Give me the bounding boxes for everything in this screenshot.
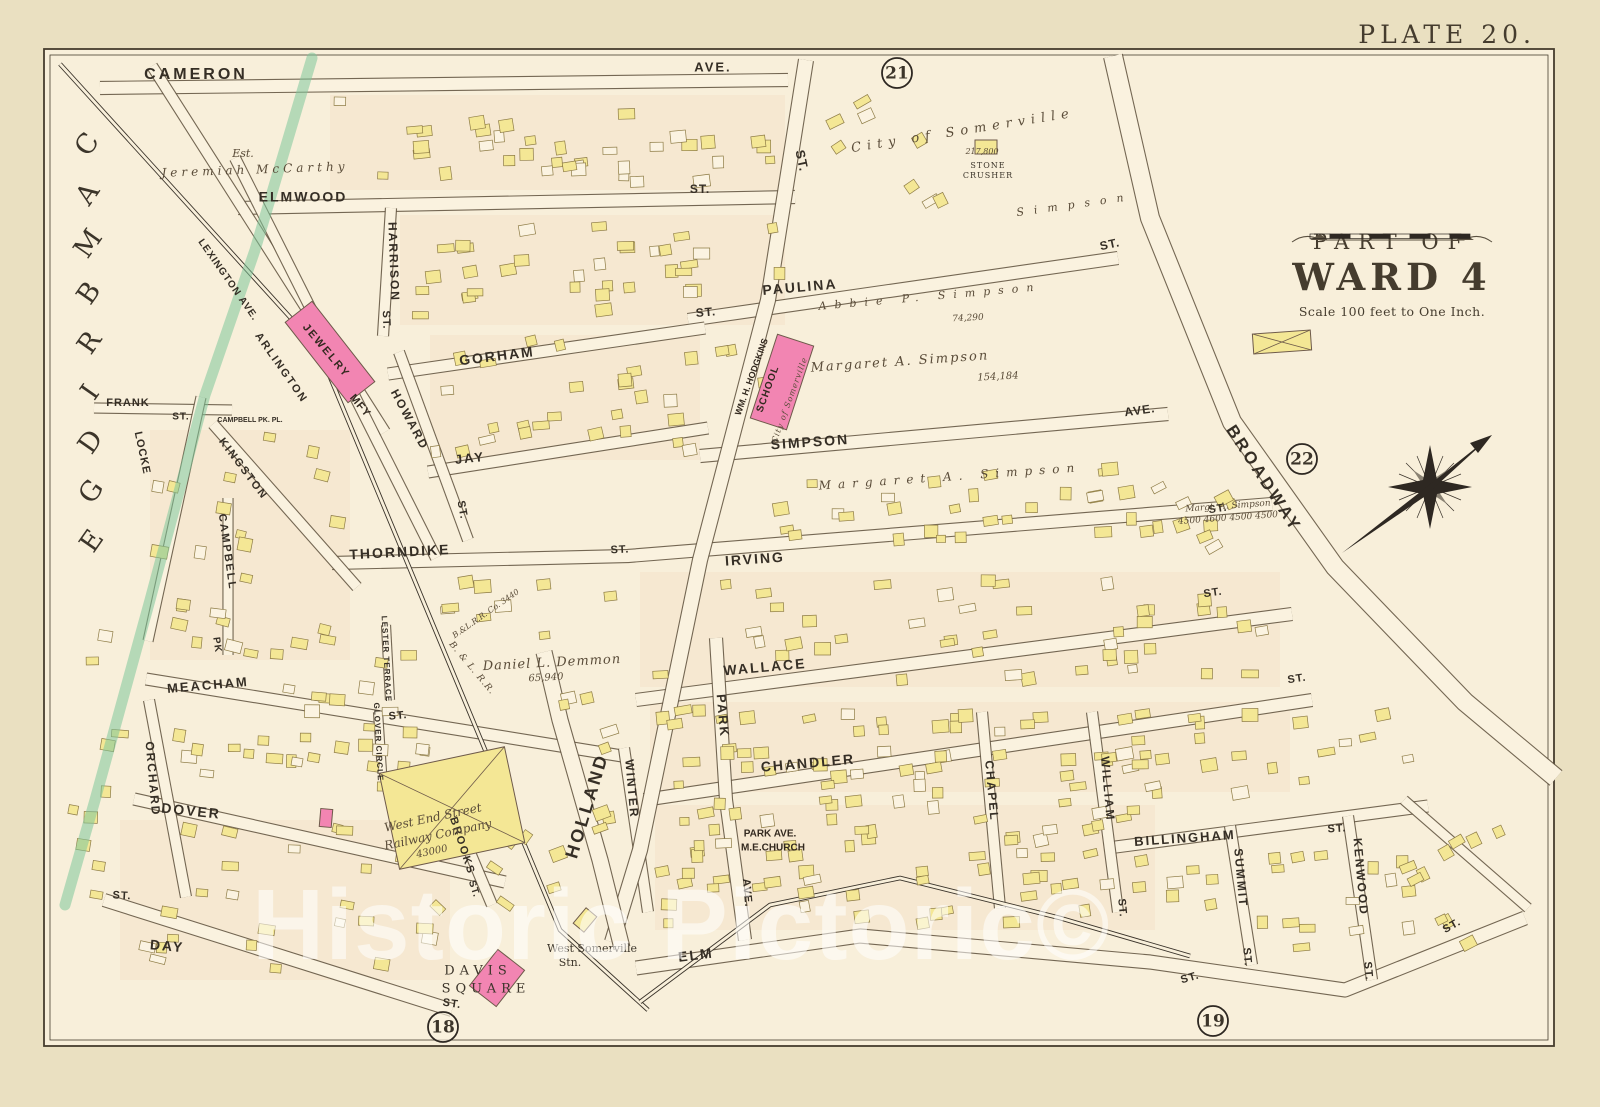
scale-bar-segment <box>1310 234 1330 239</box>
scale-bar <box>1282 230 1502 244</box>
map-canvas: CAMERONAVE.ELMWOODST.HARRISONST.PAULINAS… <box>0 0 1600 1107</box>
house-footprint <box>200 769 214 778</box>
house-footprint <box>228 744 240 752</box>
house-footprint <box>1206 874 1218 884</box>
house-footprint <box>881 493 894 502</box>
house-footprint <box>569 381 583 392</box>
house-footprint <box>1003 916 1020 928</box>
house-footprint <box>334 918 345 928</box>
house-footprint <box>479 140 493 151</box>
house-footprint <box>853 726 864 737</box>
house-footprint <box>416 286 429 294</box>
house-footprint <box>1242 708 1258 721</box>
house-footprint <box>1101 577 1114 591</box>
house-footprint <box>1021 720 1035 729</box>
house-footprint <box>283 684 295 694</box>
house-footprint <box>611 409 623 420</box>
house-footprint <box>401 650 417 660</box>
house-footprint <box>770 603 783 612</box>
house-footprint <box>682 443 697 456</box>
house-footprint <box>1299 924 1315 932</box>
house-footprint <box>1103 649 1117 660</box>
house-footprint <box>1115 747 1133 761</box>
house-footprint <box>680 817 689 825</box>
house-footprint <box>1402 921 1415 935</box>
house-footprint <box>551 157 562 167</box>
house-footprint <box>623 282 635 293</box>
house-footprint <box>709 824 720 835</box>
house-footprint <box>1070 782 1087 791</box>
scale-bar-segment <box>1350 234 1370 239</box>
house-footprint <box>191 743 203 756</box>
house-footprint <box>1293 716 1309 729</box>
house-footprint <box>305 705 320 718</box>
house-footprint <box>559 699 570 710</box>
street-label-harrison: HARRISON <box>385 222 402 302</box>
house-footprint <box>1113 627 1123 637</box>
house-footprint <box>196 889 208 897</box>
place-label-65-940: 65,940 <box>528 672 564 685</box>
house-footprint <box>266 753 283 764</box>
house-footprint <box>439 166 452 180</box>
house-footprint <box>604 591 617 602</box>
plate-number: PLATE 20. <box>1340 20 1536 49</box>
house-footprint <box>972 647 984 658</box>
title-scale-note: Scale 100 feet to One Inch. <box>1282 304 1502 319</box>
house-footprint <box>592 222 607 232</box>
house-footprint <box>1021 672 1037 687</box>
house-footprint <box>618 161 630 174</box>
house-footprint <box>937 587 954 601</box>
house-footprint <box>932 787 943 798</box>
house-footprint <box>887 502 902 516</box>
house-footprint <box>879 725 889 735</box>
house-footprint <box>765 156 775 164</box>
house-footprint <box>358 916 374 926</box>
house-footprint <box>1140 525 1154 537</box>
house-footprint <box>802 615 816 627</box>
house-footprint <box>650 246 660 257</box>
svg-text:22: 22 <box>1290 450 1314 470</box>
house-footprint <box>701 135 716 149</box>
house-footprint <box>520 148 534 160</box>
house-footprint <box>655 866 670 878</box>
house-footprint <box>1095 526 1112 537</box>
house-footprint <box>839 512 854 522</box>
house-footprint <box>595 289 609 301</box>
house-footprint <box>86 657 98 665</box>
house-footprint <box>1272 865 1285 873</box>
house-footprint <box>674 231 690 241</box>
house-footprint <box>474 580 492 594</box>
house-footprint <box>412 312 428 319</box>
house-footprint <box>258 736 269 746</box>
street-label-cameron: CAMERON <box>144 66 248 83</box>
house-footprint <box>693 248 709 259</box>
house-footprint <box>359 739 373 751</box>
house-footprint <box>1314 851 1328 861</box>
place-label-est: Est. <box>231 147 254 160</box>
house-footprint <box>617 241 634 250</box>
house-footprint <box>1124 650 1138 663</box>
place-label-square: SQUARE <box>442 982 531 997</box>
house-footprint <box>1004 835 1018 845</box>
house-footprint <box>1137 605 1150 617</box>
house-footprint <box>503 155 514 165</box>
place-label-stone: STONE <box>970 161 1005 170</box>
house-footprint <box>307 445 320 458</box>
house-footprint <box>713 156 724 168</box>
house-footprint <box>246 940 257 951</box>
house-footprint <box>932 720 949 734</box>
house-footprint <box>1033 712 1048 723</box>
house-footprint <box>969 852 986 861</box>
house-footprint <box>488 422 499 433</box>
atlas-plate-page: CAMERONAVE.ELMWOODST.HARRISONST.PAULINAS… <box>0 0 1600 1107</box>
house-footprint <box>547 412 561 421</box>
house-footprint <box>799 900 810 912</box>
house-footprint <box>562 161 577 172</box>
house-footprint <box>373 957 390 971</box>
house-footprint <box>570 282 580 292</box>
house-footprint <box>673 437 684 447</box>
house-footprint <box>893 533 904 546</box>
house-footprint <box>683 286 697 297</box>
house-footprint <box>1257 916 1268 929</box>
house-footprint <box>1079 904 1091 917</box>
junction-circle-22: 22 <box>1287 444 1317 474</box>
house-footprint <box>270 964 282 974</box>
house-footprint <box>955 532 966 543</box>
house-footprint <box>1062 878 1079 890</box>
street-label-campbell-pk-pl: CAMPBELL PK. PL. <box>217 417 282 424</box>
svg-text:18: 18 <box>431 1018 455 1038</box>
house-footprint <box>1100 879 1115 890</box>
street-label-st: ST. <box>1361 961 1375 981</box>
house-footprint <box>692 849 703 862</box>
house-footprint <box>430 445 440 457</box>
house-footprint <box>707 884 719 893</box>
house-footprint <box>1132 760 1148 769</box>
house-footprint <box>1127 806 1140 815</box>
house-footprint <box>416 923 433 934</box>
house-footprint <box>194 545 206 559</box>
house-footprint <box>821 780 835 789</box>
house-footprint <box>1293 943 1310 952</box>
house-footprint <box>1167 876 1184 889</box>
house-footprint <box>244 749 255 759</box>
house-footprint <box>580 692 594 705</box>
street-label-st: ST. <box>690 182 710 196</box>
street-label-ave: AVE. <box>694 59 731 74</box>
house-footprint <box>554 339 565 351</box>
house-footprint <box>1402 754 1414 763</box>
place-label-west-somerville: West Somerville <box>547 942 637 955</box>
house-footprint <box>1402 885 1416 897</box>
street-label-ave: AVE. <box>740 878 754 908</box>
place-label-davis: DAVIS <box>444 964 512 979</box>
house-footprint <box>152 480 164 493</box>
house-footprint <box>630 176 644 187</box>
house-footprint <box>437 244 454 253</box>
house-footprint <box>555 141 567 155</box>
house-footprint <box>720 579 731 589</box>
house-footprint <box>751 135 766 148</box>
house-footprint <box>659 244 672 256</box>
house-footprint <box>1060 770 1074 781</box>
house-footprint <box>1137 616 1152 627</box>
house-footprint <box>1375 708 1391 722</box>
house-footprint <box>670 130 687 143</box>
house-footprint <box>270 649 283 660</box>
house-footprint <box>1140 750 1152 759</box>
house-footprint <box>334 97 346 106</box>
house-footprint <box>237 537 253 552</box>
house-footprint <box>674 781 684 789</box>
house-footprint <box>893 795 905 809</box>
house-footprint <box>739 711 755 725</box>
house-footprint <box>1118 485 1135 500</box>
house-footprint <box>573 270 584 282</box>
house-footprint <box>854 910 870 924</box>
house-footprint <box>1134 855 1148 868</box>
place-label-217-800: 217,800 <box>964 147 998 156</box>
scale-bar-segment <box>1390 234 1410 239</box>
house-footprint <box>819 796 832 805</box>
house-footprint <box>756 588 772 598</box>
house-footprint <box>358 681 374 695</box>
house-footprint <box>594 258 606 271</box>
scale-bar-segment <box>1330 234 1350 239</box>
house-footprint <box>1194 733 1204 744</box>
house-footprint <box>896 674 908 686</box>
house-footprint <box>1042 824 1057 835</box>
house-footprint <box>1237 620 1252 633</box>
house-footprint <box>1291 851 1305 863</box>
house-footprint <box>772 501 789 516</box>
house-footprint <box>618 373 632 387</box>
street-label-st: ST. <box>1115 898 1129 918</box>
house-footprint <box>403 727 417 738</box>
house-footprint <box>935 751 947 762</box>
house-footprint <box>210 608 226 619</box>
house-footprint <box>1232 751 1247 761</box>
house-footprint <box>176 599 190 611</box>
house-footprint <box>336 826 353 835</box>
house-footprint <box>958 709 973 723</box>
place-label-154-184: 154,184 <box>977 370 1019 383</box>
simpson-estate-building <box>1252 330 1311 354</box>
house-footprint <box>1242 670 1259 678</box>
house-footprint <box>1051 883 1062 894</box>
house-footprint <box>1026 503 1038 513</box>
house-footprint <box>855 826 869 834</box>
house-footprint <box>1201 668 1212 678</box>
house-footprint <box>1217 607 1227 618</box>
house-footprint <box>815 643 831 655</box>
junction-circle-21: 21 <box>882 58 912 88</box>
street-label-frank: FRANK <box>106 397 150 409</box>
house-footprint <box>682 868 694 878</box>
house-footprint <box>899 764 914 777</box>
house-footprint <box>595 303 613 317</box>
house-footprint <box>1188 713 1201 722</box>
building-label-m-e-church: M.E.CHURCH <box>741 843 805 854</box>
house-footprint <box>798 886 815 899</box>
house-footprint <box>533 421 550 430</box>
house-footprint <box>469 115 486 130</box>
svg-text:21: 21 <box>885 64 909 84</box>
house-footprint <box>263 432 276 442</box>
house-footprint <box>767 223 778 234</box>
house-footprint <box>1255 625 1269 636</box>
house-footprint <box>927 801 939 815</box>
house-footprint <box>694 840 704 850</box>
house-footprint <box>498 118 514 132</box>
house-footprint <box>361 864 371 874</box>
street-label-st: ST. <box>1240 947 1254 967</box>
house-footprint <box>1104 638 1118 651</box>
house-footprint <box>620 426 631 438</box>
house-footprint <box>407 126 423 135</box>
house-footprint <box>1101 462 1118 476</box>
house-footprint <box>456 240 471 251</box>
street-label-st: ST. <box>695 304 716 320</box>
street-label-pk: PK <box>210 636 223 653</box>
house-footprint <box>653 670 669 678</box>
house-footprint <box>311 692 326 701</box>
house-footprint <box>684 351 698 365</box>
house-footprint <box>841 709 854 720</box>
street-label-jay: JAY <box>454 449 486 467</box>
house-footprint <box>518 223 535 236</box>
house-footprint <box>827 814 837 825</box>
house-footprint <box>1117 713 1132 725</box>
house-footprint <box>675 268 691 276</box>
house-footprint <box>635 390 649 404</box>
house-footprint <box>1041 853 1055 862</box>
house-footprint <box>1153 520 1164 533</box>
house-footprint <box>1132 736 1145 745</box>
house-footprint <box>850 769 863 779</box>
house-footprint <box>721 746 734 759</box>
house-footprint <box>222 861 239 870</box>
house-footprint <box>874 580 892 590</box>
house-footprint <box>664 919 673 928</box>
house-footprint <box>329 515 345 529</box>
house-footprint <box>500 263 517 277</box>
house-footprint <box>1060 487 1071 500</box>
house-footprint <box>930 908 943 921</box>
place-label-stn: Stn. <box>559 956 582 969</box>
scale-bar-segment <box>1430 234 1450 239</box>
house-footprint <box>416 743 430 755</box>
house-footprint <box>845 795 862 808</box>
house-footprint <box>936 535 945 542</box>
house-footprint <box>224 472 237 483</box>
house-footprint <box>774 267 785 279</box>
house-footprint <box>1231 786 1249 801</box>
house-footprint <box>1059 798 1072 807</box>
house-footprint <box>914 779 926 792</box>
house-footprint <box>807 480 817 488</box>
house-footprint <box>664 394 678 407</box>
house-footprint <box>995 727 1005 736</box>
house-footprint <box>846 890 860 902</box>
scale-bar-segment <box>1370 234 1390 239</box>
house-footprint <box>1268 852 1281 864</box>
house-footprint <box>693 705 706 716</box>
house-footprint <box>1299 776 1310 784</box>
house-footprint <box>467 289 483 296</box>
street-label-st: ST. <box>112 889 132 902</box>
house-footprint <box>1339 739 1352 747</box>
street-label-elmwood: ELMWOOD <box>259 189 348 205</box>
house-footprint <box>1349 925 1364 935</box>
junction-circle-18: 18 <box>428 1012 458 1042</box>
house-footprint <box>441 385 454 395</box>
house-footprint <box>714 798 725 810</box>
street-label-st: ST. <box>172 412 189 423</box>
house-footprint <box>715 838 731 848</box>
house-footprint <box>288 845 300 853</box>
house-footprint <box>1020 891 1037 902</box>
house-footprint <box>764 876 781 888</box>
house-footprint <box>514 254 529 266</box>
scale-bar-segment <box>1450 234 1470 239</box>
house-footprint <box>667 718 683 730</box>
house-footprint <box>1005 669 1022 680</box>
house-footprint <box>754 636 765 649</box>
house-footprint <box>788 530 802 541</box>
place-label-74-290: 74,290 <box>952 313 984 325</box>
street-label-st: ST. <box>610 543 630 556</box>
house-footprint <box>661 899 677 911</box>
glover-small-pink-building <box>319 809 333 828</box>
house-footprint <box>90 890 103 899</box>
street-label-day: DAY <box>149 936 185 955</box>
house-footprint <box>618 109 635 120</box>
svg-text:19: 19 <box>1201 1012 1225 1032</box>
street-label-st: ST. <box>388 709 408 723</box>
house-footprint <box>1144 643 1156 654</box>
house-footprint <box>713 875 729 884</box>
house-footprint <box>92 860 106 871</box>
house-footprint <box>425 270 441 284</box>
house-footprint <box>729 807 742 820</box>
house-footprint <box>1016 606 1031 615</box>
house-footprint <box>1368 862 1378 874</box>
house-footprint <box>1061 754 1076 766</box>
house-footprint <box>1128 664 1138 673</box>
house-footprint <box>1166 890 1179 902</box>
house-footprint <box>1002 515 1013 524</box>
house-footprint <box>1283 918 1300 928</box>
house-footprint <box>334 741 349 755</box>
house-footprint <box>924 525 937 537</box>
house-footprint <box>1135 709 1151 719</box>
scale-bar-segment <box>1410 234 1430 239</box>
house-footprint <box>68 805 79 816</box>
house-footprint <box>518 426 531 439</box>
house-footprint <box>715 345 729 356</box>
house-footprint <box>291 757 303 767</box>
house-footprint <box>378 172 389 179</box>
house-footprint <box>1023 872 1040 885</box>
house-footprint <box>1127 513 1137 526</box>
house-footprint <box>650 142 663 151</box>
house-footprint <box>1017 848 1028 857</box>
